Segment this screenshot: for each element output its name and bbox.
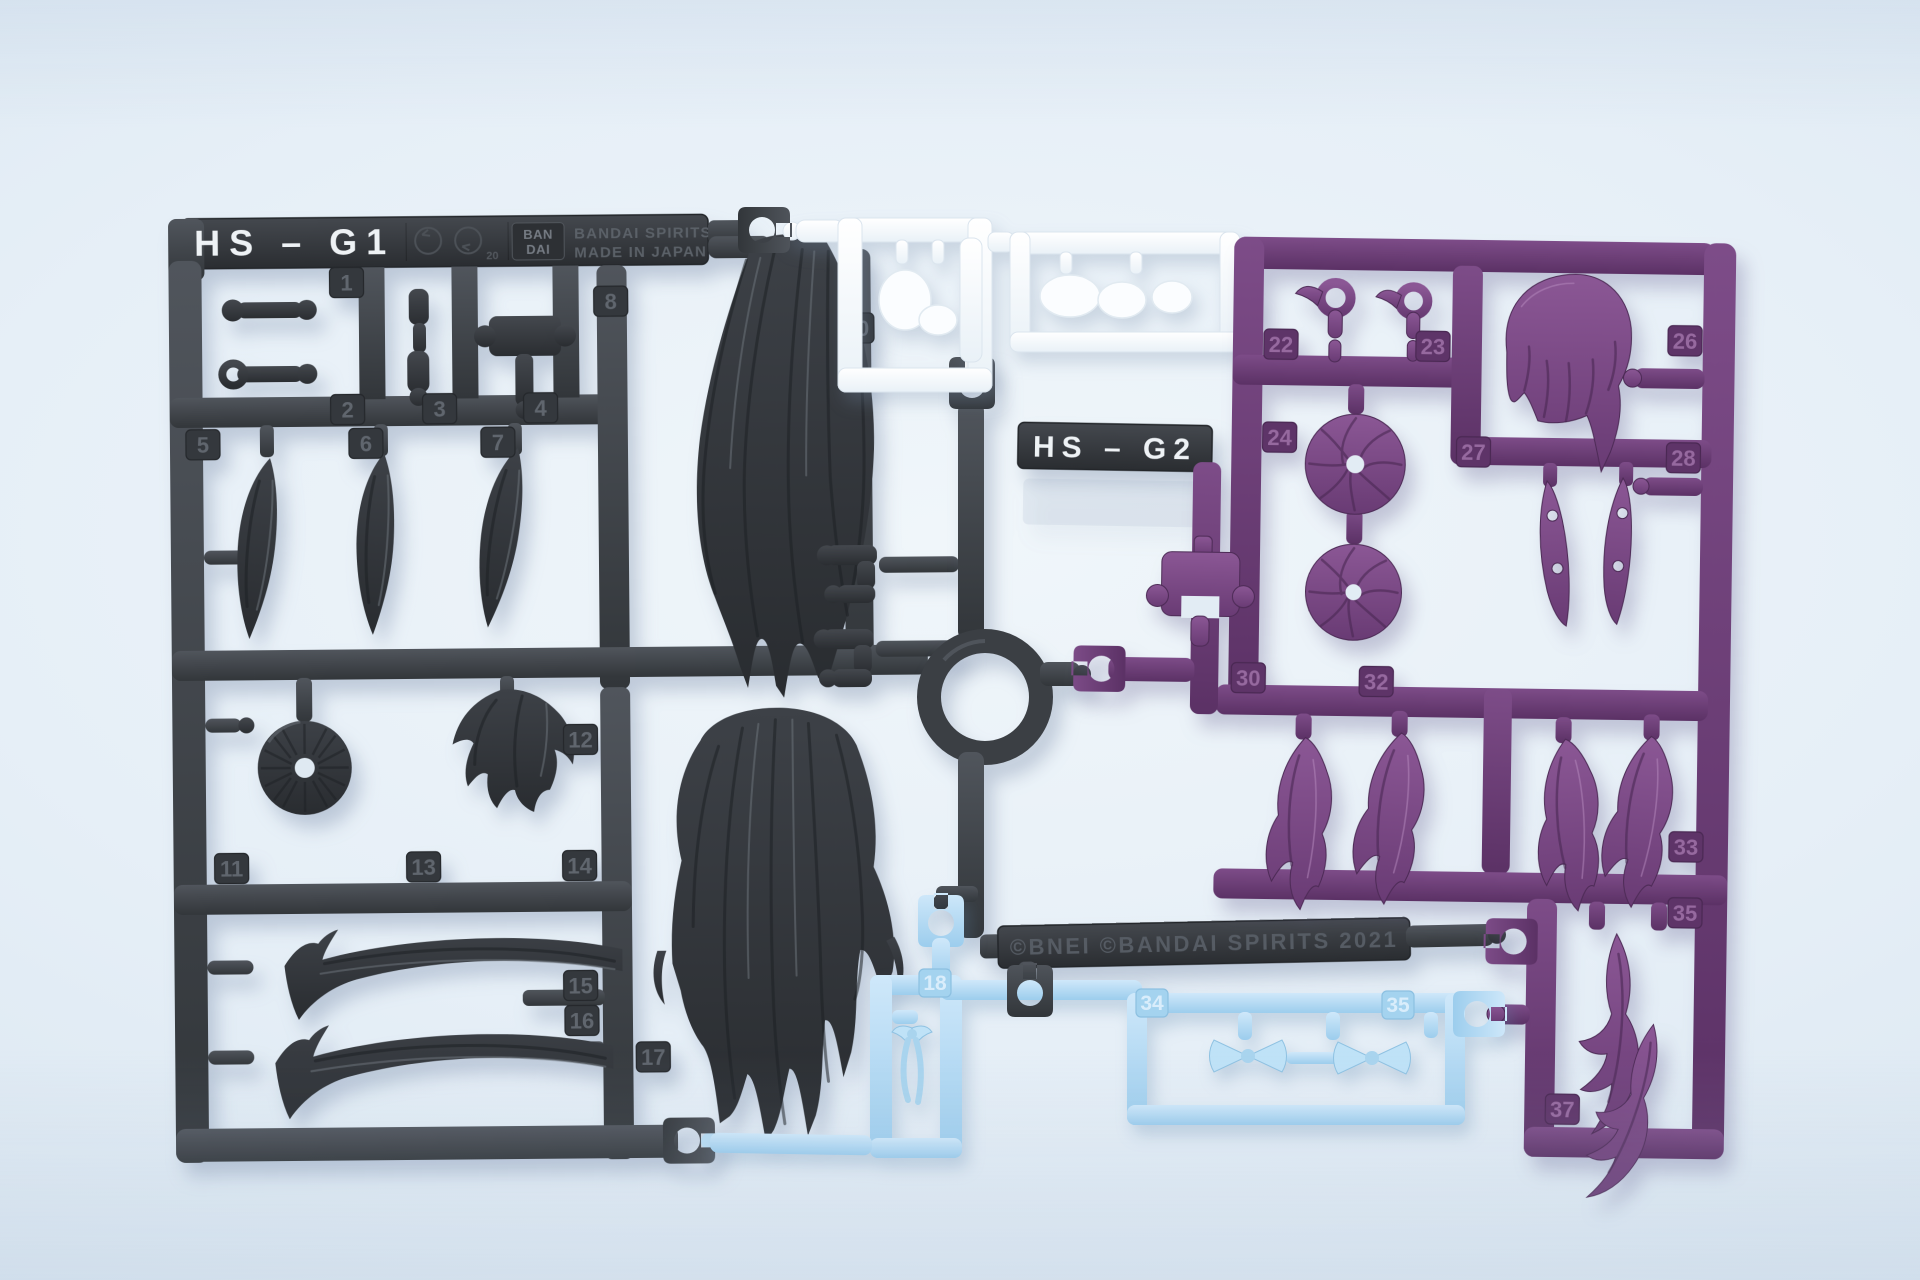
bow-part: [1210, 1040, 1287, 1072]
svg-text:12: 12: [568, 727, 593, 752]
material-mark-number: 20: [486, 250, 498, 262]
long-hair-back-part-lower: [651, 707, 905, 1143]
copyright-bar: ©BNEI ©BANDAI SPIRITS 2021: [980, 916, 1507, 989]
side-lock-part: [466, 444, 533, 630]
svg-text:15: 15: [568, 973, 593, 998]
part-number-tab: 22: [1264, 329, 1298, 359]
svg-text:11: 11: [220, 856, 243, 881]
part-number-tab: 28: [1666, 443, 1700, 473]
svg-text:22: 22: [1269, 332, 1294, 357]
svg-text:28: 28: [1671, 446, 1696, 471]
part-number-tab: 3: [422, 394, 456, 424]
part-number-tab: 18: [919, 969, 951, 997]
part-number-tab: 2: [331, 394, 365, 424]
svg-text:1: 1: [340, 270, 352, 295]
svg-text:18: 18: [923, 972, 947, 995]
bow-part: [1334, 1042, 1411, 1074]
svg-text:24: 24: [1267, 425, 1293, 450]
svg-text:17: 17: [641, 1045, 666, 1070]
part-number-tab: 4: [523, 393, 557, 423]
part-number-tab: 7: [481, 427, 515, 457]
part-number-tab: 13: [406, 852, 440, 882]
runner-photo-canvas: HS – G1 20 BAN DAI BANDAI SPIRITS MADE I…: [0, 0, 1920, 1280]
face-part: [1040, 275, 1100, 317]
brand-stamp-line1: BANDAI SPIRITS: [574, 224, 712, 242]
ball-joint-part: [222, 299, 317, 322]
part-number-tab: 37: [1545, 1094, 1579, 1124]
svg-text:7: 7: [492, 430, 504, 455]
g2-plate-text: HS – G2: [1033, 431, 1198, 467]
svg-text:34: 34: [1140, 992, 1164, 1015]
bandai-logo: BAN DAI: [512, 223, 564, 260]
svg-text:13: 13: [411, 855, 436, 880]
part-number-tab: 11: [215, 853, 249, 883]
bandai-logo-top: BAN: [523, 227, 553, 242]
white-frame-right: [988, 232, 1256, 352]
eyelet-part: [1295, 282, 1351, 362]
svg-text:6: 6: [360, 431, 372, 456]
zigzag-joint-part: [407, 289, 430, 406]
hair-strand-part: [1596, 477, 1640, 625]
svg-text:14: 14: [567, 853, 592, 878]
part-number-tab: 12: [563, 724, 597, 754]
part-number-tab: 32: [1359, 666, 1393, 696]
part-number-tab: 23: [1416, 331, 1450, 361]
part-number-tab: 27: [1456, 437, 1490, 467]
svg-text:35: 35: [1673, 901, 1698, 926]
hair-strand-part: [1537, 480, 1572, 627]
g2-frame-rails: [1102, 235, 1737, 1160]
svg-text:26: 26: [1673, 329, 1698, 354]
part-number-tab: 35: [1382, 991, 1414, 1019]
runner-white: [783, 218, 1256, 392]
svg-text:2: 2: [341, 397, 353, 422]
svg-text:37: 37: [1550, 1097, 1575, 1122]
part-number-tab: 14: [562, 850, 596, 880]
part-number-tab: 30: [1231, 663, 1265, 693]
blue-frame-left: [870, 975, 962, 1158]
svg-text:32: 32: [1364, 669, 1389, 694]
svg-text:33: 33: [1674, 835, 1699, 860]
hair-bun-part: [257, 720, 352, 815]
svg-text:16: 16: [570, 1008, 595, 1033]
svg-text:4: 4: [534, 396, 547, 421]
part-number-tab: 26: [1668, 326, 1702, 356]
svg-text:23: 23: [1421, 334, 1446, 359]
photo-of-model-kit-runners: HS – G1 20 BAN DAI BANDAI SPIRITS MADE I…: [0, 0, 1920, 1280]
bandai-logo-bottom: DAI: [526, 242, 550, 257]
socket-joint-part: [222, 363, 317, 386]
face-part: [1152, 281, 1192, 313]
long-strand-part: [275, 1023, 614, 1120]
svg-text:27: 27: [1461, 440, 1486, 465]
part-number-tab: 5: [186, 430, 220, 460]
ribbon-part: [892, 1026, 932, 1102]
svg-text:8: 8: [604, 289, 616, 314]
side-lock-part: [227, 456, 285, 641]
svg-text:3: 3: [433, 397, 445, 422]
part-number-tab: 8: [594, 286, 628, 316]
svg-text:5: 5: [197, 433, 209, 458]
g2-label-plate: HS – G2: [1017, 422, 1219, 527]
side-lock-part: [351, 452, 399, 636]
part-number-tab: 6: [349, 428, 383, 458]
g1-side-lock-parts: [226, 444, 535, 641]
part-number-tab: 33: [1669, 832, 1703, 862]
part-number-tab: 24: [1262, 422, 1296, 452]
part-number-tab: 34: [1136, 989, 1168, 1017]
part-number-tab: 16: [565, 1005, 599, 1035]
g1-plate-text: HS – G1: [194, 221, 395, 264]
swirl-bun-part: [1305, 414, 1406, 515]
part-number-tab: 17: [636, 1042, 670, 1072]
bangs-part: [452, 689, 574, 813]
swirl-bun-part: [1305, 544, 1402, 641]
svg-text:30: 30: [1236, 666, 1261, 691]
face-part: [919, 305, 957, 335]
part-number-tab: 15: [564, 970, 598, 1000]
part-number-tab: 35: [1668, 898, 1702, 928]
face-part: [1098, 282, 1146, 318]
svg-text:35: 35: [1386, 994, 1410, 1017]
part-number-tab: 1: [329, 267, 363, 297]
